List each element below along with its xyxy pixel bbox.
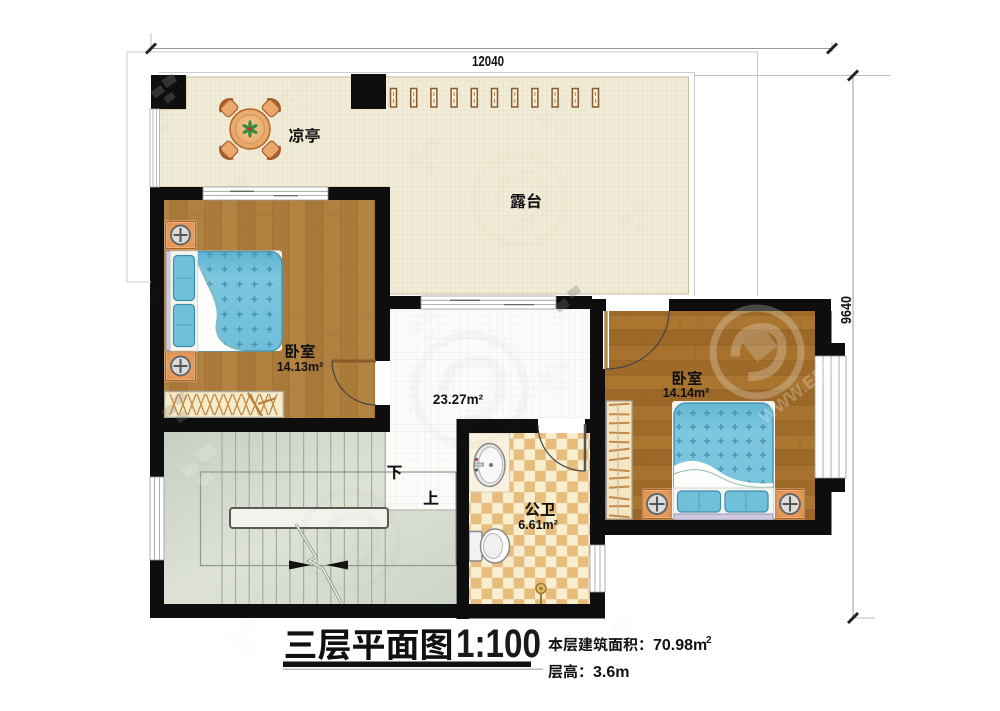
svg-text:14.13m²: 14.13m² bbox=[277, 360, 324, 374]
svg-text:14.14m²: 14.14m² bbox=[663, 386, 710, 400]
svg-text:12040: 12040 bbox=[472, 53, 504, 70]
svg-text:1:100: 1:100 bbox=[456, 622, 541, 666]
svg-text:9640: 9640 bbox=[838, 296, 855, 324]
svg-text:70.98m: 70.98m bbox=[653, 637, 707, 654]
svg-text:3.6m: 3.6m bbox=[593, 664, 629, 681]
svg-text:2: 2 bbox=[706, 635, 712, 646]
svg-text:6.61m²: 6.61m² bbox=[518, 518, 558, 532]
